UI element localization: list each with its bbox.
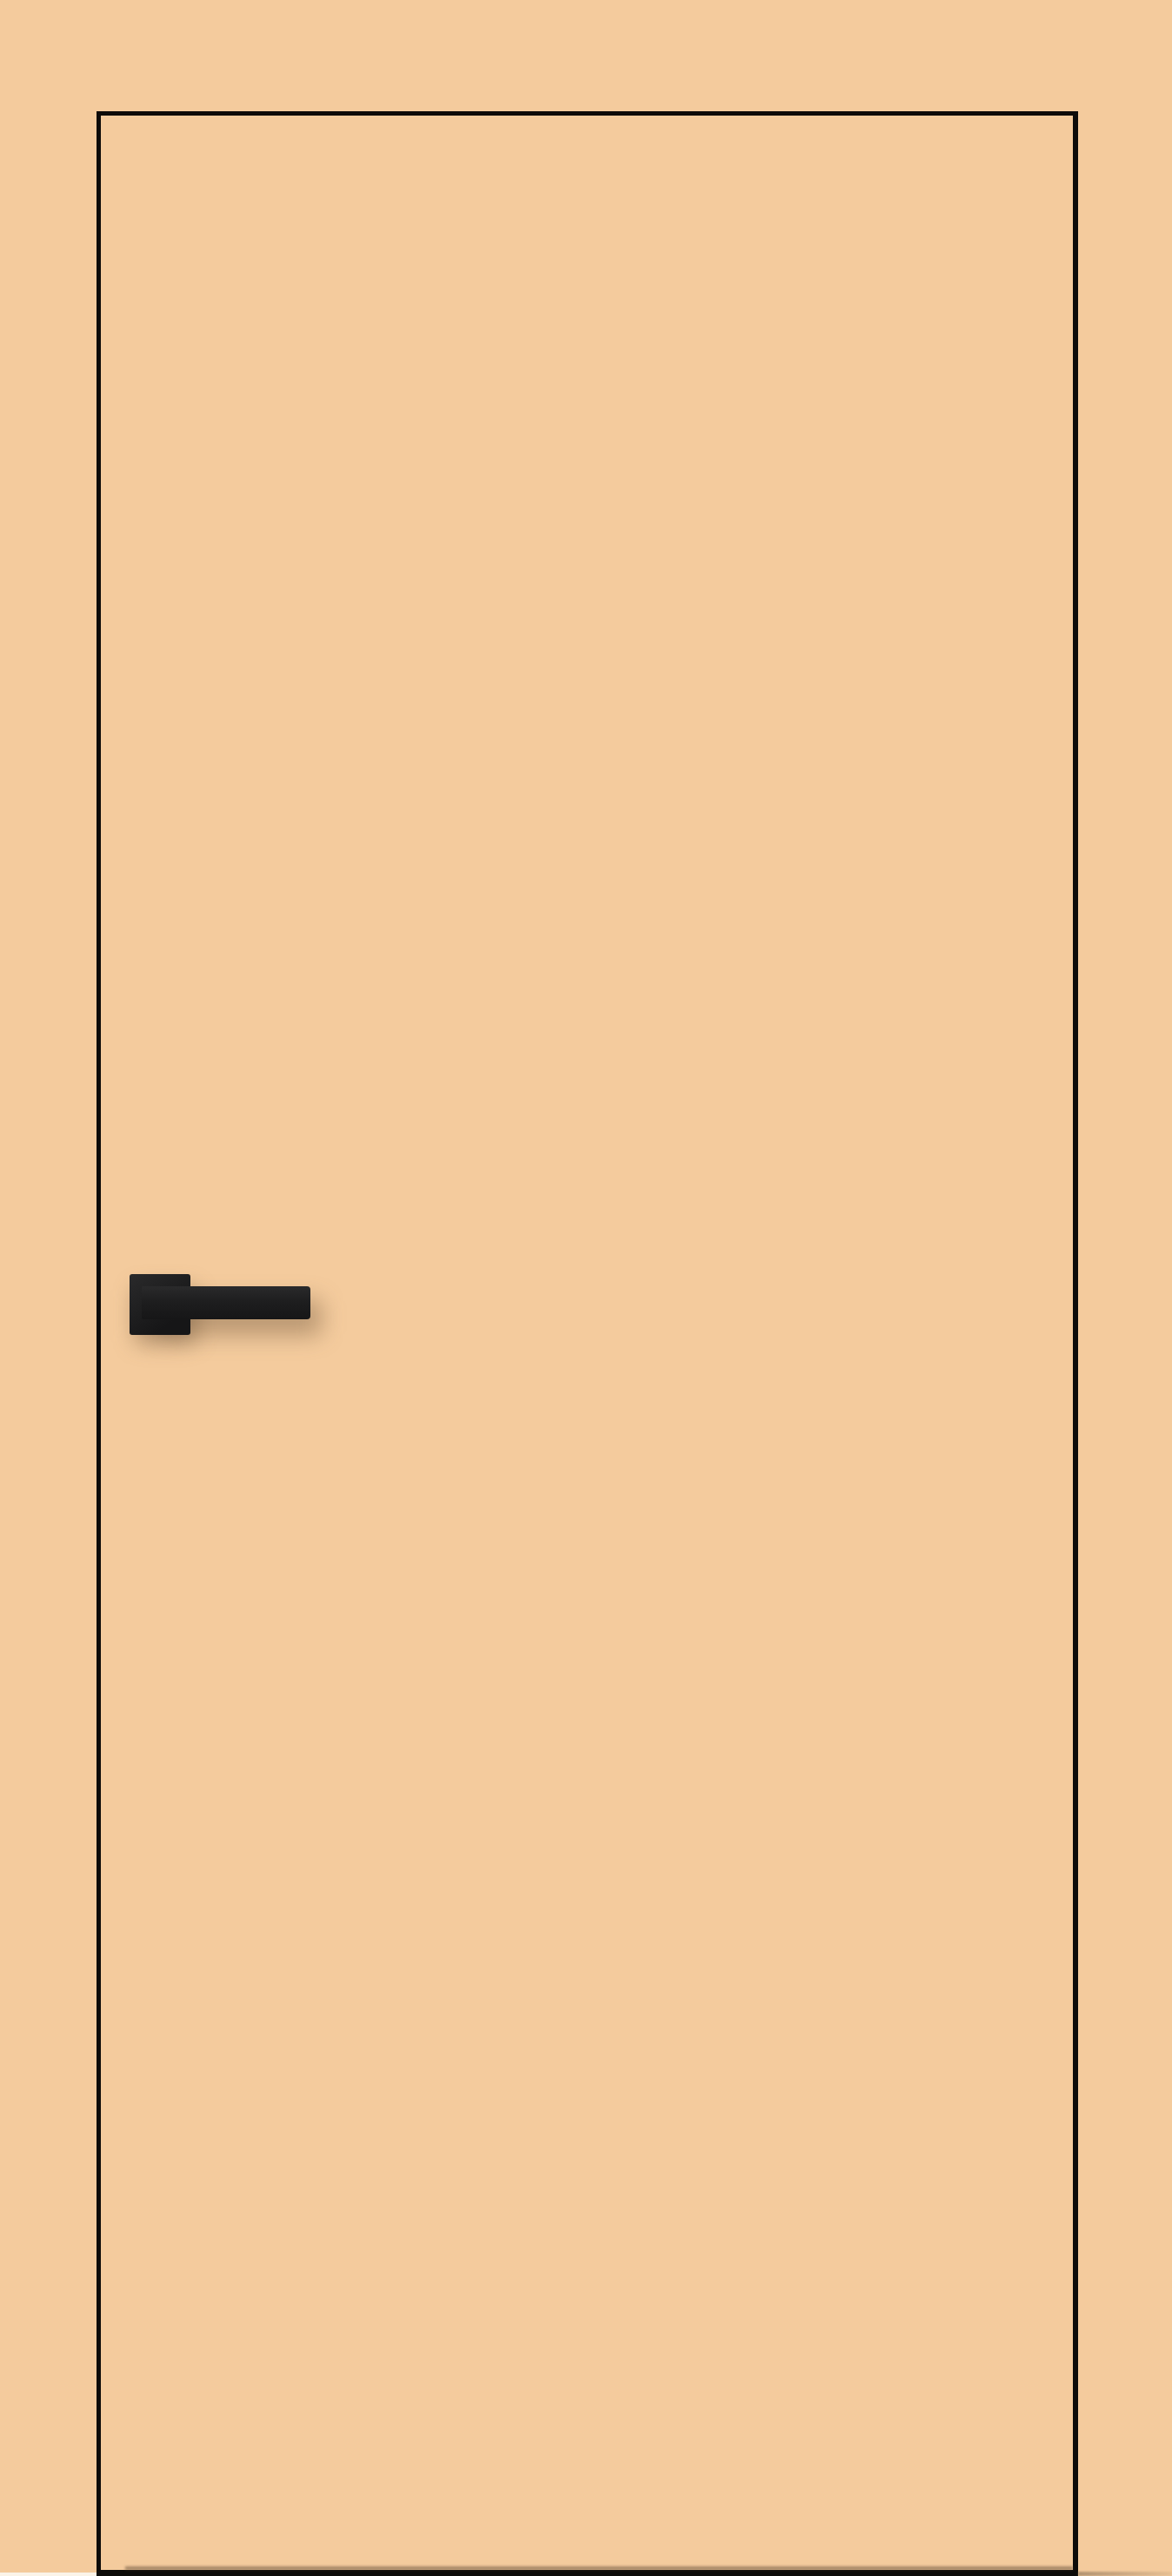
door-leaf (97, 111, 1078, 2576)
door-handle-lever (142, 1286, 310, 1319)
door-bottom-shadow (125, 2566, 1073, 2570)
floor-edge-sliver (0, 2573, 97, 2576)
product-image-scene (0, 0, 1172, 2576)
floor-shadow (1078, 2572, 1172, 2576)
